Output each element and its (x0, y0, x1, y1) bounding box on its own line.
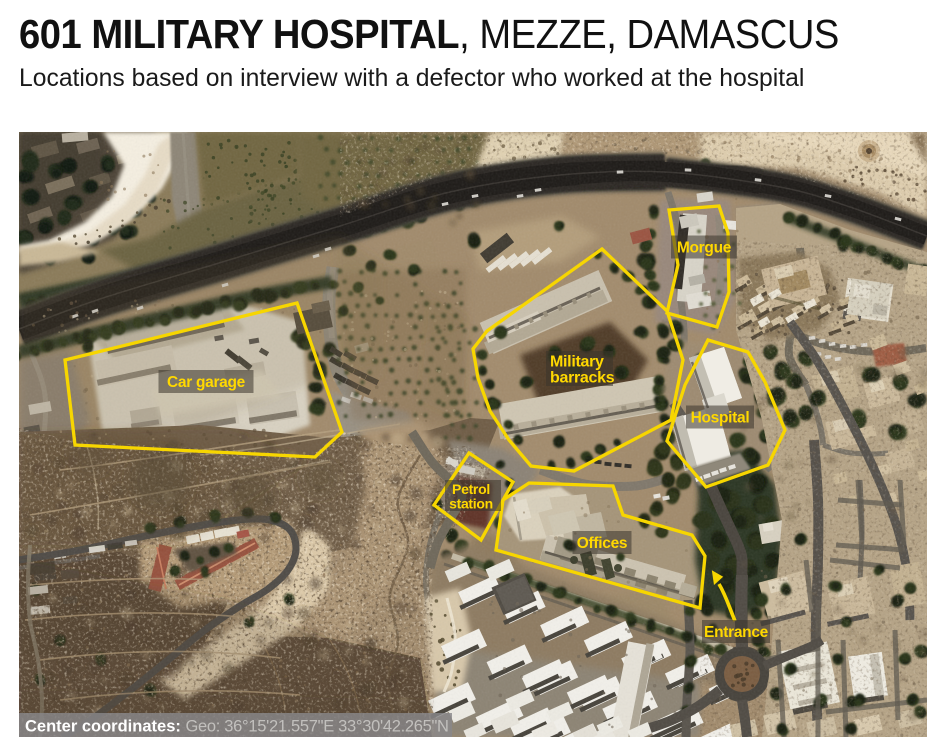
svg-text:Military: Military (550, 354, 604, 371)
svg-text:Morgue: Morgue (677, 240, 732, 257)
svg-text:Car garage: Car garage (167, 374, 246, 391)
svg-text:Center coordinates: Geo: 36°15: Center coordinates: Geo: 36°15'21.557"E … (25, 718, 449, 736)
svg-text:station: station (449, 496, 493, 512)
svg-text:barracks: barracks (550, 370, 615, 387)
svg-text:Hospital: Hospital (691, 410, 750, 427)
svg-text:Entrance: Entrance (704, 624, 769, 641)
svg-text:Offices: Offices (577, 535, 627, 552)
